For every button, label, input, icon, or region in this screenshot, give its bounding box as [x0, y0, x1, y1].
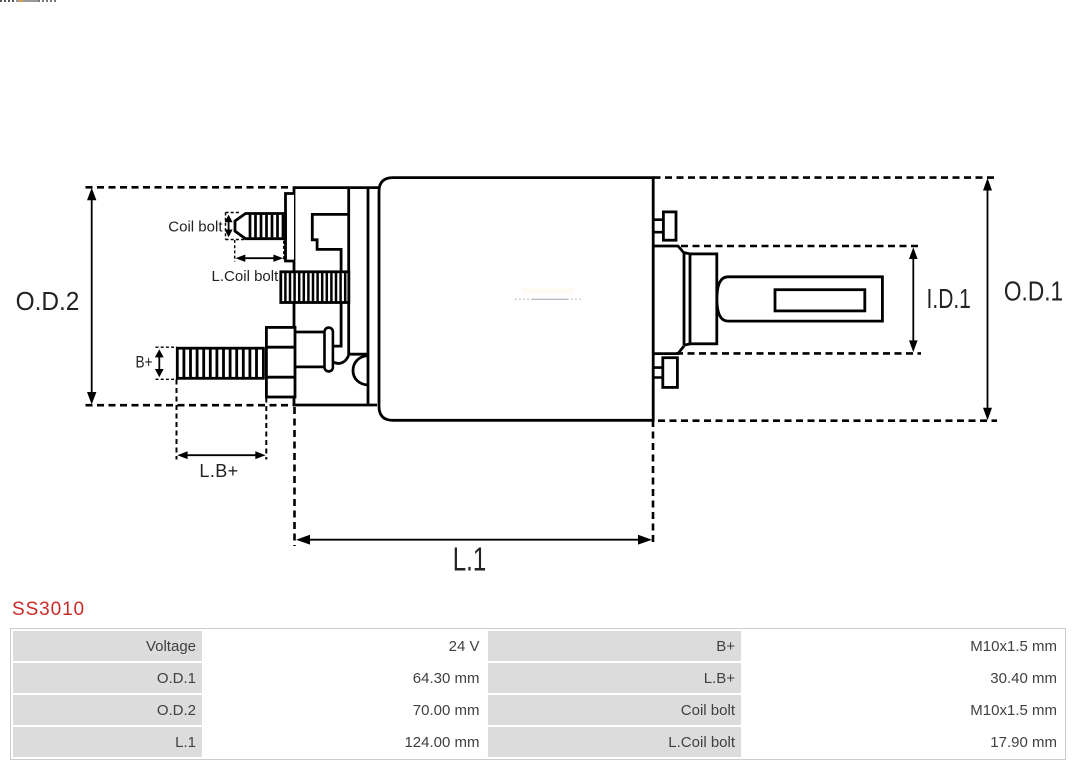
svg-text:L.Coil bolt: L.Coil bolt: [212, 268, 280, 285]
svg-text:O.D.2: O.D.2: [16, 287, 80, 316]
svg-text:Coil bolt: Coil bolt: [168, 219, 223, 236]
svg-text:B+: B+: [136, 353, 153, 372]
svg-text:I.D.1: I.D.1: [927, 284, 971, 315]
svg-text:L.B+: L.B+: [199, 461, 238, 481]
svg-text:O.D.1: O.D.1: [1004, 276, 1063, 307]
svg-text:L.1: L.1: [453, 542, 486, 579]
